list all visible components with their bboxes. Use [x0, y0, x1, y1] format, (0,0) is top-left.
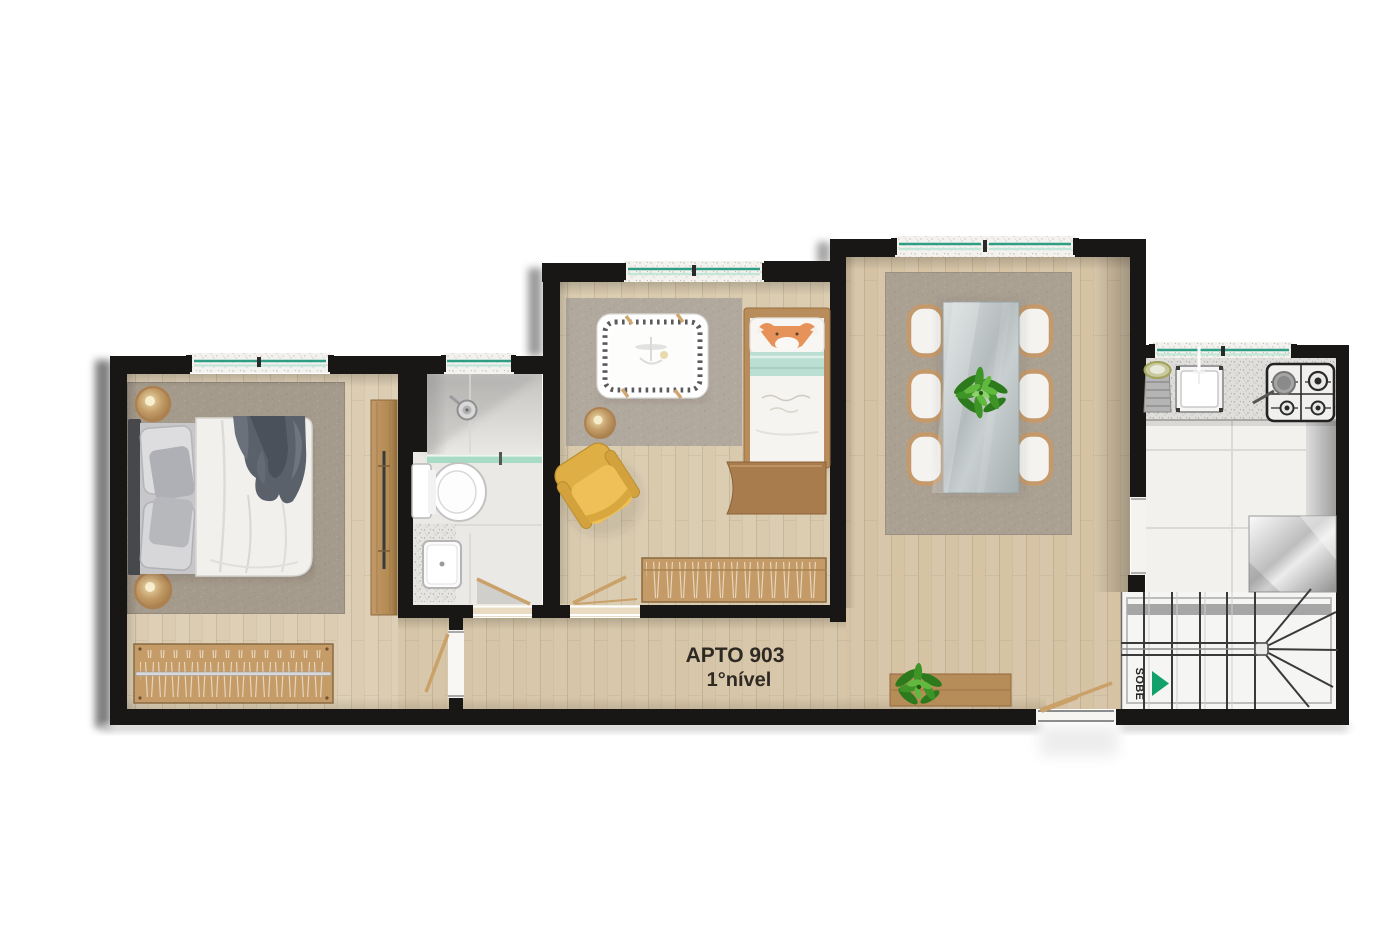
svg-text:APTO 903: APTO 903	[686, 644, 785, 667]
svg-text:SOBE: SOBE	[1133, 668, 1145, 701]
svg-text:1°nível: 1°nível	[707, 669, 772, 691]
